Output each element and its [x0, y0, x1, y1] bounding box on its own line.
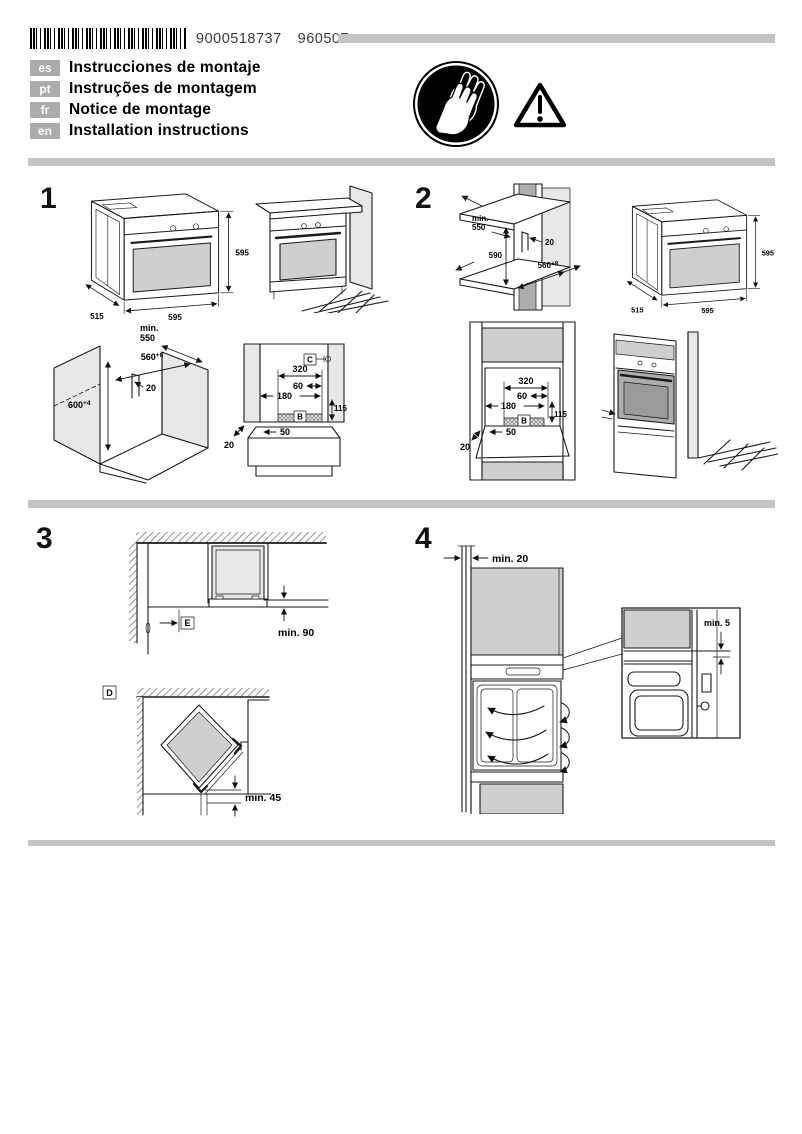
dim-50: 50 [280, 427, 290, 437]
dim-min-value: 550 [472, 223, 486, 232]
language-code-pt: pt [30, 81, 60, 97]
dim-320: 320 [518, 376, 533, 386]
base-cabinet-dimensions-diagram: min. 550 600+4 560+8 20 [42, 320, 222, 484]
dim-320: 320 [292, 364, 307, 374]
dim-115: 115 [554, 410, 567, 419]
dim-180: 180 [277, 391, 292, 401]
section-1-number: 1 [40, 184, 57, 214]
label-c: C [307, 356, 313, 365]
tall-cabinet-front-dimensions-diagram: B 320 60 180 115 50 20 [440, 318, 605, 484]
dim-oven-width: 595 [701, 306, 713, 314]
dim-niche-height: 590 [489, 251, 503, 260]
corner-installation-top-view-diagram: E min. 90 [100, 528, 332, 656]
section-divider-middle [28, 500, 775, 508]
top-clearance-detail-diagram: min. 5 [618, 600, 748, 742]
protective-gloves-icon [412, 60, 500, 148]
label-b: B [297, 413, 303, 422]
oven-dimensions-diagram-2: 595 595 515 [606, 190, 782, 314]
dim-back-gap: 20 [545, 238, 554, 247]
warning-triangle-icon [512, 80, 568, 130]
undercounter-installation-diagram [250, 183, 392, 313]
section-3-number: 3 [36, 524, 53, 554]
dim-min-20: min. 20 [492, 553, 528, 565]
dim-back-gap: 20 [146, 383, 156, 393]
dim-recess-width: 560+8 [141, 352, 164, 362]
section-4-number: 4 [415, 524, 432, 554]
section-divider-top [28, 158, 775, 166]
title-es: Instrucciones de montaje [69, 59, 261, 77]
oven-dimensions-diagram: 595 595 515 [62, 183, 258, 321]
language-row-en: en Installation instructions [30, 120, 261, 141]
dim-min-5: min. 5 [704, 618, 730, 628]
language-code-fr: fr [30, 102, 60, 118]
title-en: Installation instructions [69, 122, 249, 140]
dim-180: 180 [501, 401, 516, 411]
tall-cabinet-installation-diagram [600, 322, 778, 484]
dim-oven-height: 595 [762, 248, 774, 257]
title-pt: Instruções de montagem [69, 80, 257, 98]
corner-diagonal-installation-diagram: D min. 45 [95, 672, 333, 822]
language-code-en: en [30, 123, 60, 139]
dim-20: 20 [224, 440, 234, 450]
dim-60: 60 [293, 381, 303, 391]
dim-60: 60 [517, 391, 527, 401]
ventilation-clearance-diagram: min. 20 [440, 538, 625, 814]
dim-min-45: min. 45 [245, 792, 281, 804]
language-row-pt: pt Instruções de montagem [30, 78, 261, 99]
language-list: es Instrucciones de montaje pt Instruçõe… [30, 57, 261, 141]
header-rule [338, 34, 775, 43]
label-d: D [106, 688, 113, 698]
dim-20: 20 [460, 442, 470, 452]
title-fr: Notice de montage [69, 101, 211, 119]
part-number: 9000518737 [196, 31, 282, 47]
language-row-fr: fr Notice de montage [30, 99, 261, 120]
tall-cabinet-niche-diagram: min. 550 590 20 560+8 [452, 180, 610, 312]
dim-50: 50 [506, 427, 516, 437]
dim-min-label: min. [472, 214, 488, 223]
dim-oven-height: 595 [235, 249, 249, 258]
section-divider-bottom [28, 840, 775, 846]
dim-min-90: min. 90 [278, 627, 314, 639]
dim-oven-depth: 515 [631, 305, 643, 314]
barcode [30, 28, 186, 49]
language-code-es: es [30, 60, 60, 76]
section-2-number: 2 [415, 184, 432, 214]
installation-instructions-page: { "header": { "part_number": "9000518737… [0, 0, 802, 1134]
label-e: E [184, 618, 190, 628]
label-b: B [521, 417, 527, 426]
niche-front-dimensions-diagram: B C 320 60 180 115 50 20 [220, 330, 388, 482]
language-row-es: es Instrucciones de montaje [30, 57, 261, 78]
dim-min-value: 550 [140, 333, 155, 343]
dim-115: 115 [334, 404, 347, 413]
dim-min-label: min. [140, 323, 159, 333]
